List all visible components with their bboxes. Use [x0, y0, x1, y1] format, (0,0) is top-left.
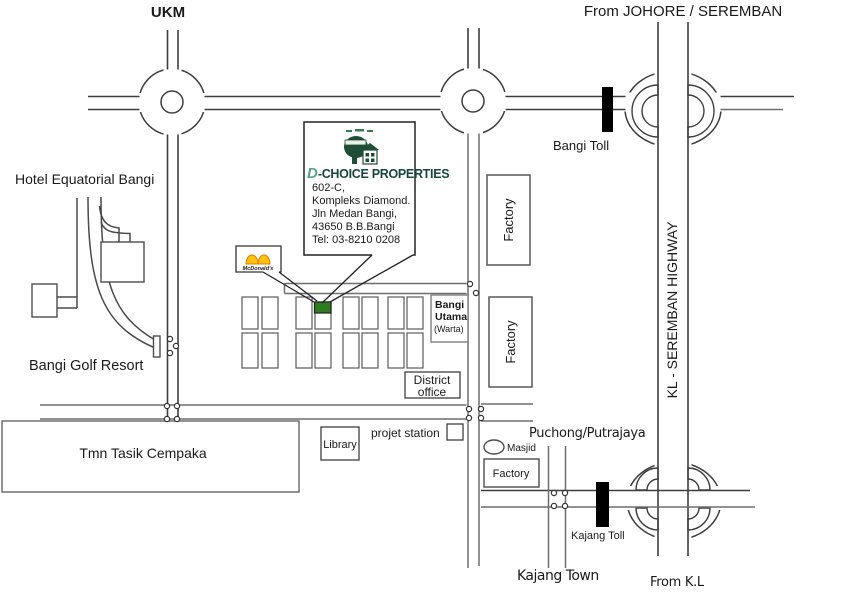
address-line: Tel: 03-8210 0208 — [312, 234, 400, 246]
logo-microtext-mark — [346, 130, 352, 132]
label-bangi-utama-warta: (Warta) — [434, 324, 464, 334]
dchoice-pointer-line — [330, 255, 413, 302]
label-from-kl: From K.L — [650, 575, 705, 590]
label-kl-seremban-highway: KL - SEREMBAN HIGHWAY — [664, 221, 680, 399]
logo-house-icon — [363, 150, 377, 164]
road-central-north — [468, 28, 479, 69]
label-district-office: office — [418, 385, 447, 399]
road-gap-mask — [437, 92, 509, 111]
label-library: Library — [323, 439, 357, 451]
logo-banner — [345, 140, 366, 145]
map-canvas: McDonald's D-CHOICE PROPERTIES 602-C, Ko… — [0, 0, 860, 592]
hotel-annex-building — [32, 284, 57, 317]
junction-dot — [167, 350, 172, 355]
location-map: McDonald's D-CHOICE PROPERTIES 602-C, Ko… — [0, 0, 860, 592]
label-factory-south: Factory — [493, 468, 530, 480]
shop-lot — [388, 297, 404, 329]
dchoice-brand: D-CHOICE PROPERTIES — [307, 165, 449, 182]
address-line: 43650 B.B.Bangi — [312, 221, 395, 233]
address-line: Jln Medan Bangi, — [312, 208, 397, 220]
label-tmn-tasik-cempaka: Tmn Tasik Cempaka — [79, 445, 207, 461]
junction-dot — [174, 403, 179, 408]
road-main-east-west — [205, 97, 441, 110]
label-bangi-utama: Bangi — [435, 299, 464, 311]
shop-lot — [315, 333, 331, 368]
label-factory-upper: Factory — [501, 198, 516, 242]
shop-lot — [407, 297, 423, 329]
shop-lot — [242, 297, 258, 329]
logo-microtext-mark — [355, 129, 364, 132]
logo-house-window — [371, 153, 375, 157]
dchoice-pointer-line — [322, 255, 372, 303]
junction-dot — [562, 490, 567, 495]
label-masjid: Masjid — [507, 443, 536, 454]
junction-dot — [473, 290, 478, 295]
shop-lot — [242, 333, 258, 368]
junction-dot — [167, 336, 172, 341]
junction-dot — [478, 415, 483, 420]
road-ukm-south — [168, 135, 179, 420]
shop-lots — [242, 297, 423, 368]
logo-house-window — [366, 153, 370, 157]
label-hotel-equatorial: Hotel Equatorial Bangi — [15, 171, 154, 187]
highway-interchange-bottom — [622, 457, 726, 547]
hotel-driveway-inner — [101, 222, 130, 242]
shop-lot — [262, 333, 278, 368]
label-bangi-toll: Bangi Toll — [553, 138, 609, 153]
address-line: 602-C, — [312, 182, 345, 194]
dchoice-callout: D-CHOICE PROPERTIES 602-C, Kompleks Diam… — [304, 122, 449, 303]
junction-dot — [466, 415, 471, 420]
junction-dot — [466, 406, 471, 411]
shop-lot — [343, 333, 359, 368]
junction-dot — [164, 416, 169, 421]
hotel-annex-stub — [57, 297, 77, 308]
golf-gate — [154, 336, 161, 357]
junction-dot — [173, 343, 178, 348]
highway-interchange-top — [622, 66, 724, 152]
logo-tree-trunk — [352, 156, 357, 164]
mcdonalds-label: McDonald's — [243, 266, 274, 272]
dchoice-brand-rest: -CHOICE PROPERTIES — [318, 167, 449, 181]
junction-dot — [164, 403, 169, 408]
projet-station-box — [447, 424, 463, 440]
logo-house-window — [366, 159, 370, 163]
dchoice-highlighted-lot — [315, 302, 332, 313]
shop-lot — [388, 333, 404, 368]
road-central-south — [468, 134, 479, 569]
address-line: Kompleks Diamond. — [312, 195, 410, 207]
roundabout-ukm — [136, 66, 208, 138]
kajang-toll-gate — [596, 482, 609, 527]
shop-lot — [296, 297, 312, 329]
label-ukm: UKM — [151, 4, 185, 21]
junction-dot — [174, 416, 179, 421]
logo-microtext-mark — [367, 130, 373, 132]
label-projet-station: projet station — [371, 426, 440, 440]
shop-lot — [407, 333, 423, 368]
label-bangi-utama: Utama — [435, 311, 467, 323]
road-west-stub — [88, 97, 140, 110]
bangi-toll-gate — [602, 87, 613, 132]
label-kajang-toll: Kajang Toll — [571, 530, 625, 542]
road-bottom-west — [40, 405, 467, 419]
label-kajang-town: Kajang Town — [517, 568, 599, 584]
dchoice-brand-d: D — [307, 165, 318, 182]
shop-lot — [362, 333, 378, 368]
label-from-johore: From JOHORE / SEREMBAN — [584, 3, 782, 20]
label-puchong-putrajaya: Puchong/Putrajaya — [529, 426, 645, 441]
shop-lot — [362, 297, 378, 329]
masjid-symbol — [484, 440, 504, 454]
shop-lot — [296, 333, 312, 368]
shop-lot — [343, 297, 359, 329]
junction-dot — [562, 503, 567, 508]
junction-dot — [467, 281, 472, 286]
label-factory-lower: Factory — [503, 320, 518, 364]
junction-dot — [551, 490, 556, 495]
junction-dot — [551, 503, 556, 508]
road-puchong-stub — [481, 404, 533, 421]
road-to-ukm — [168, 30, 179, 70]
logo-house-window — [371, 159, 375, 163]
hotel-building — [101, 242, 144, 282]
shop-lot — [262, 297, 278, 329]
shop-access-road — [285, 284, 467, 294]
road-gap-mask — [136, 93, 208, 112]
roundabout-central — [437, 65, 509, 137]
junction-dot — [478, 406, 483, 411]
label-bangi-golf: Bangi Golf Resort — [29, 358, 143, 374]
